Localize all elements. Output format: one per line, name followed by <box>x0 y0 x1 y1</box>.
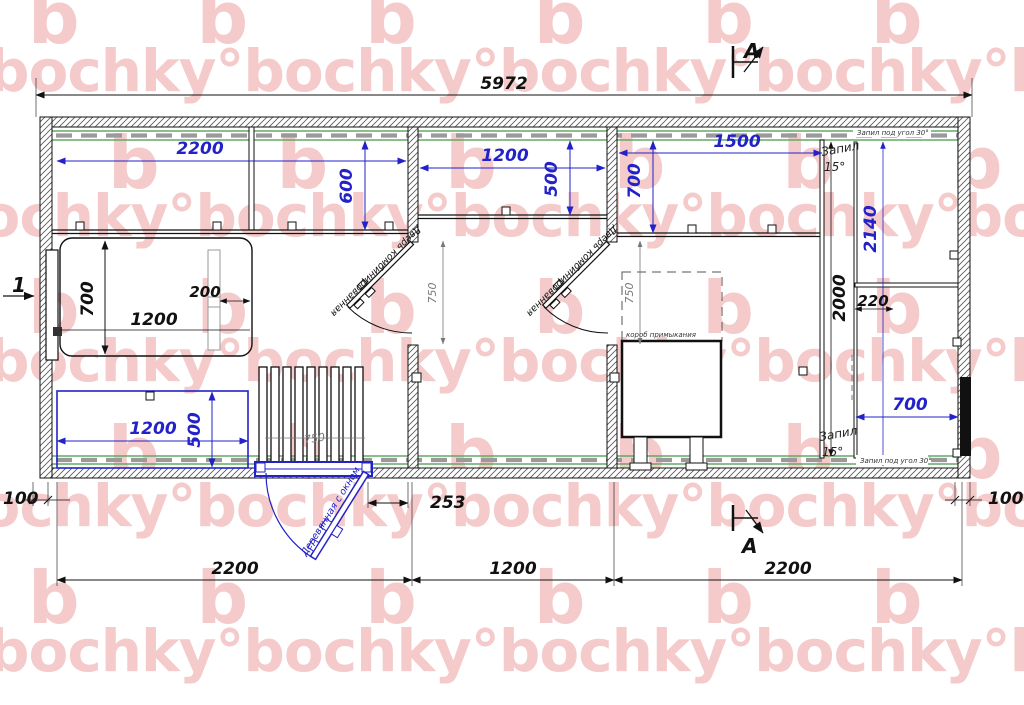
bench-step <box>855 283 958 287</box>
dim-room1-top: 2200 <box>176 139 223 159</box>
door-hinge-mark <box>53 327 62 336</box>
dim-porch-offset: 253 <box>430 493 466 513</box>
dimensions: 5972 2200 600 1200 500 1500 700 700 1200… <box>3 74 1024 586</box>
section-letter: A <box>742 39 759 63</box>
dim-offset-left: 100 <box>3 489 39 509</box>
dim-bench-low: 700 <box>892 395 928 415</box>
wall-bottom <box>40 468 970 478</box>
stove-foot <box>630 463 651 470</box>
dim-overall: 5972 <box>480 74 527 94</box>
section-marker-top: A <box>733 39 763 78</box>
dim-step: 220 <box>857 292 888 310</box>
interior-door-b <box>538 237 613 333</box>
room2 <box>418 207 607 219</box>
shelf-post <box>385 222 393 230</box>
dim-bench-depth: 500 <box>185 412 205 448</box>
left-wall-door <box>46 250 58 360</box>
cut30-note-bottom: Запил под угол 30° <box>860 457 932 465</box>
dim-door1-opening: 750 <box>426 283 439 304</box>
shelf-post <box>213 222 221 230</box>
dim-bottom-room1: 2200 <box>211 559 258 579</box>
shelf-post <box>288 222 296 230</box>
interior-door-a <box>342 237 417 333</box>
position-marker-1: 1 <box>3 273 34 297</box>
threshold-end <box>256 463 265 472</box>
dim-room3-shelf-w: 1500 <box>713 132 760 152</box>
dim-bench-length: 1200 <box>129 419 176 439</box>
stove-leg <box>690 437 703 463</box>
dim-room3-shelf-d: 700 <box>625 163 645 199</box>
post <box>799 367 807 375</box>
cut30-note-top: Запил под угол 30° <box>857 129 929 137</box>
interior-walls <box>408 127 617 468</box>
section-marker-bottom: A <box>733 505 763 558</box>
wall-b-lower <box>607 345 617 468</box>
dim-room2-top: 1200 <box>481 146 528 166</box>
dim-offset-right: 100 <box>988 489 1024 509</box>
floor-plan-drawing: 5972 2200 600 1200 500 1500 700 700 1200… <box>0 0 1024 705</box>
right-wall-window <box>960 377 971 456</box>
post <box>953 449 961 457</box>
dim-room2-shelf: 500 <box>542 161 562 197</box>
wall-a-lower <box>408 345 418 468</box>
stove-leg <box>634 437 647 463</box>
position-number: 1 <box>12 273 26 297</box>
entrance-door-label: Деревянная с окном <box>299 465 363 559</box>
stove-body <box>622 341 721 437</box>
dim-headrest: 200 <box>189 283 220 301</box>
shelf-post <box>502 207 510 215</box>
wall-top <box>40 117 970 127</box>
shelf-post <box>768 225 776 233</box>
post <box>953 338 961 346</box>
screen-partition <box>820 140 824 458</box>
door-swing-arc <box>348 307 412 333</box>
dim-bed-length: 1200 <box>130 310 177 330</box>
dim-bench-right: 2140 <box>861 205 881 252</box>
frame-clip <box>412 373 421 382</box>
shelf-post <box>688 225 696 233</box>
dim-bed-width: 700 <box>78 281 98 317</box>
frame-clip <box>610 373 619 382</box>
door-b-label: Дверь комбинированная <box>524 222 620 318</box>
door-swing-arc <box>544 307 608 333</box>
dim-bottom-room2: 1200 <box>489 559 536 579</box>
bench-post <box>146 392 154 400</box>
bevel-deg-top: 15° <box>824 160 845 174</box>
dim-bottom-room3: 2200 <box>764 559 811 579</box>
post <box>950 251 958 259</box>
dim-room1-shelf: 600 <box>337 168 357 204</box>
door-a-label: Дверь комбинированная <box>328 222 424 318</box>
door-leaf <box>305 468 375 563</box>
stove-foot <box>686 463 707 470</box>
stove-label: короб примыкания <box>626 331 696 339</box>
shelf-divider <box>249 127 254 230</box>
bevel-deg-bottom: 15° <box>822 445 843 459</box>
stove <box>412 272 722 470</box>
porch-deck <box>259 367 365 462</box>
dim-screen-length: 2000 <box>830 274 850 321</box>
shelf-post <box>76 222 84 230</box>
dim-door2-opening: 750 <box>623 283 636 304</box>
section-letter: A <box>740 534 757 558</box>
